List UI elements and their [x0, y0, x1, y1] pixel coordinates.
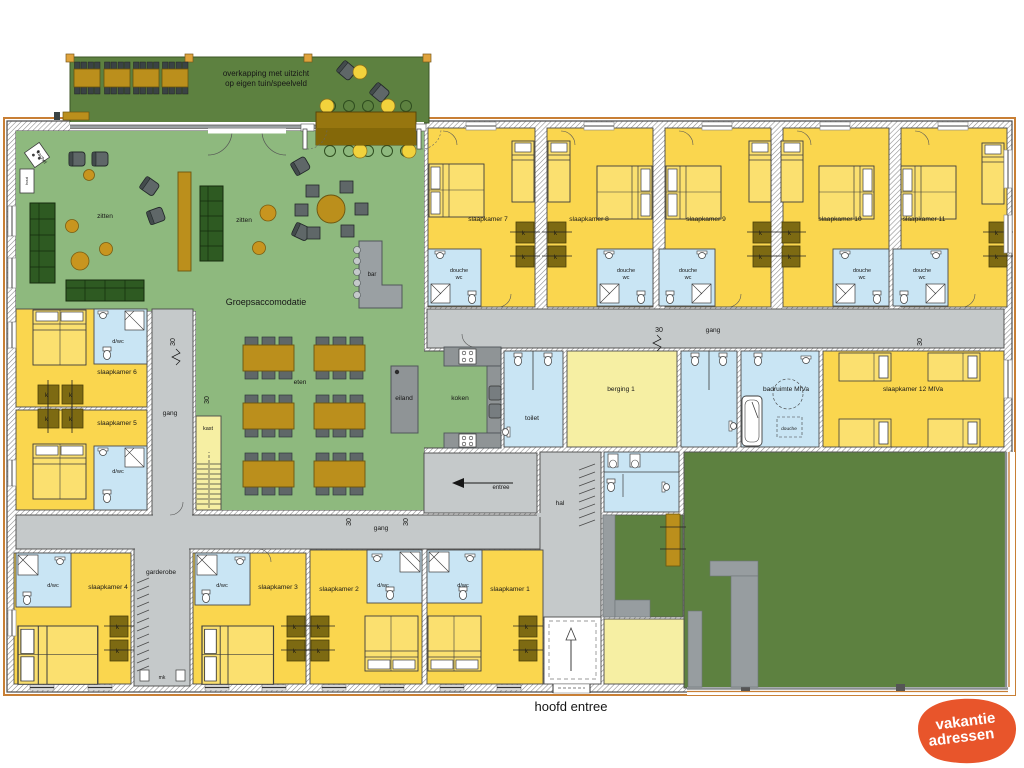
- svg-text:douche: douche: [853, 268, 871, 274]
- svg-text:slaapkamer 12 MIVa: slaapkamer 12 MIVa: [883, 386, 943, 393]
- svg-text:slaapkamer 11: slaapkamer 11: [903, 216, 946, 223]
- svg-text:douche: douche: [617, 268, 635, 274]
- svg-text:badruimte MIVa: badruimte MIVa: [763, 386, 809, 393]
- svg-text:wc: wc: [684, 275, 692, 281]
- svg-text:slaapkamer 4: slaapkamer 4: [88, 584, 128, 591]
- svg-text:slaapkamer 7: slaapkamer 7: [468, 216, 508, 223]
- svg-text:30: 30: [346, 518, 353, 526]
- svg-text:gang: gang: [706, 327, 721, 334]
- svg-text:d/wc: d/wc: [112, 339, 124, 345]
- svg-text:overkapping met uitzicht: overkapping met uitzicht: [223, 69, 310, 78]
- svg-text:zitten: zitten: [97, 213, 113, 220]
- svg-text:d/wc: d/wc: [457, 583, 469, 589]
- svg-text:Groepsaccomodatie: Groepsaccomodatie: [226, 297, 307, 307]
- svg-text:douche: douche: [679, 268, 697, 274]
- svg-text:toilet: toilet: [525, 415, 539, 422]
- svg-text:slaapkamer 3: slaapkamer 3: [258, 584, 298, 591]
- svg-text:garderobe: garderobe: [146, 569, 176, 576]
- svg-text:30: 30: [403, 518, 410, 526]
- svg-text:d/wc: d/wc: [377, 583, 389, 589]
- svg-text:bar: bar: [368, 272, 377, 278]
- svg-text:wc: wc: [622, 275, 630, 281]
- svg-text:eten: eten: [294, 379, 307, 386]
- svg-text:slaapkamer 2: slaapkamer 2: [319, 586, 359, 593]
- svg-text:douche: douche: [450, 268, 468, 274]
- svg-text:d/wc: d/wc: [47, 583, 59, 589]
- svg-text:d/wc: d/wc: [112, 469, 124, 475]
- svg-text:slaapkamer 1: slaapkamer 1: [490, 586, 530, 593]
- svg-text:wc: wc: [455, 275, 463, 281]
- svg-text:mk: mk: [159, 675, 166, 681]
- svg-text:berging 1: berging 1: [607, 386, 635, 393]
- svg-text:30: 30: [917, 338, 924, 346]
- svg-text:hal: hal: [556, 500, 565, 507]
- svg-text:slaapkamer 9: slaapkamer 9: [686, 216, 726, 223]
- svg-text:hoofd entree: hoofd entree: [534, 699, 607, 714]
- svg-text:slaapkamer 6: slaapkamer 6: [97, 369, 137, 376]
- svg-text:30: 30: [204, 396, 211, 404]
- svg-text:douche: douche: [781, 426, 797, 432]
- svg-text:gang: gang: [163, 410, 178, 417]
- svg-text:gang: gang: [374, 525, 389, 532]
- svg-text:zitten: zitten: [236, 217, 252, 224]
- svg-text:wc: wc: [918, 275, 926, 281]
- svg-text:hout: hout: [24, 176, 29, 185]
- svg-text:d/wc: d/wc: [216, 583, 228, 589]
- svg-text:wc: wc: [858, 275, 866, 281]
- svg-text:douche: douche: [913, 268, 931, 274]
- svg-text:slaapkamer 10: slaapkamer 10: [818, 216, 862, 223]
- svg-text:op eigen tuin/speelveld: op eigen tuin/speelveld: [225, 79, 307, 88]
- svg-text:slaapkamer 8: slaapkamer 8: [569, 216, 609, 223]
- svg-text:30: 30: [170, 338, 177, 346]
- svg-text:entree: entree: [492, 485, 510, 491]
- svg-text:koken: koken: [451, 395, 469, 402]
- svg-text:eiland: eiland: [395, 395, 413, 402]
- svg-text:30: 30: [655, 327, 663, 334]
- svg-text:kast: kast: [203, 426, 214, 432]
- svg-text:slaapkamer 5: slaapkamer 5: [97, 420, 137, 427]
